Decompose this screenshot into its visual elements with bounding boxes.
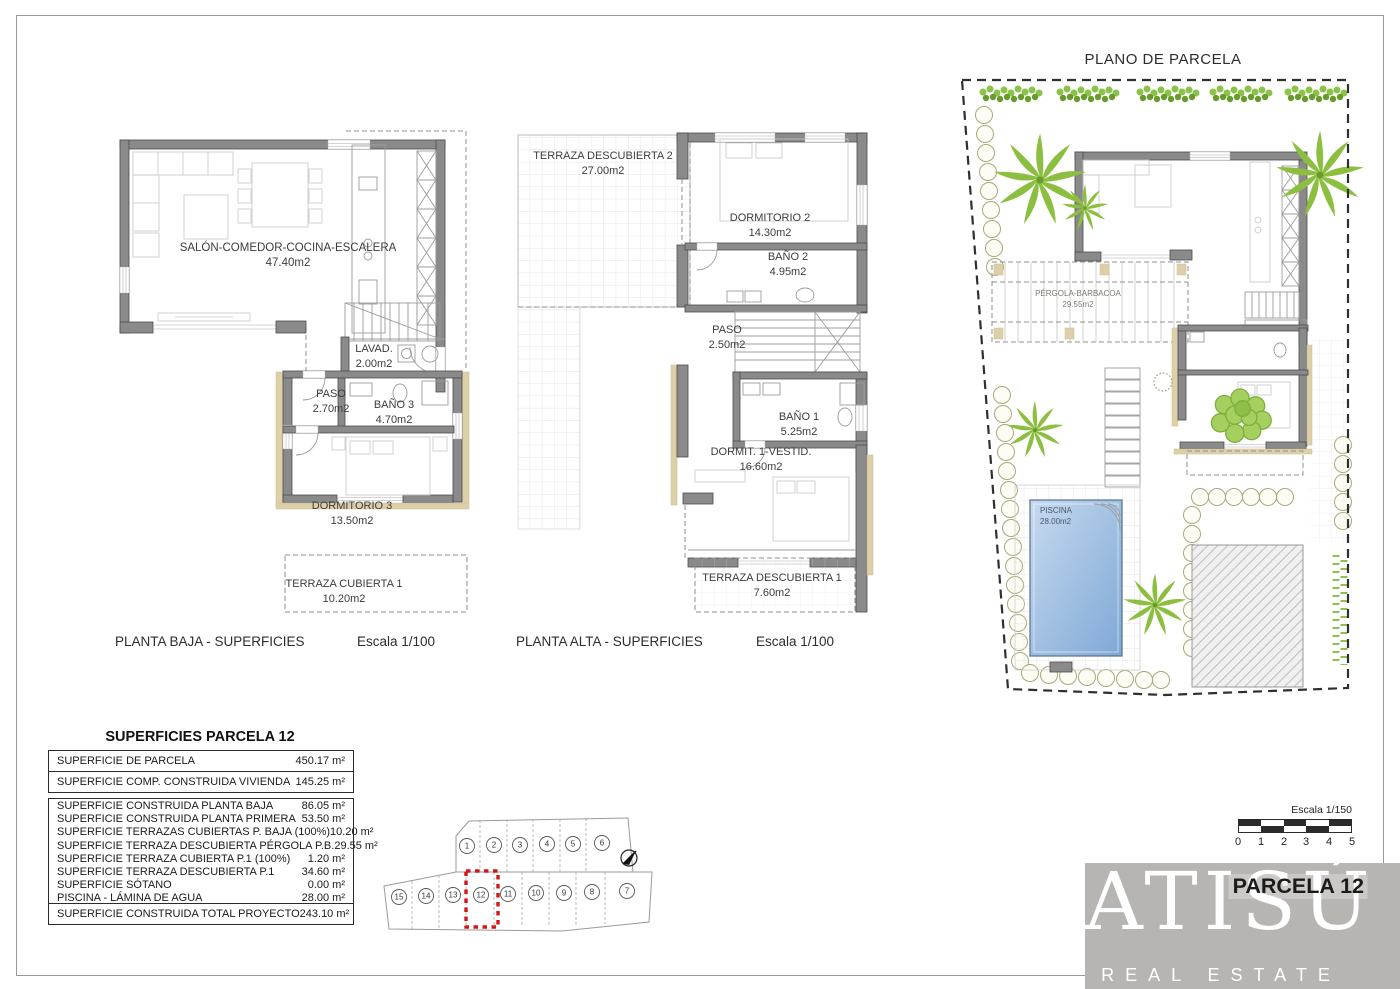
table-row-label: SUPERFICIE SÓTANO [57,879,172,892]
surface-table-row-vivienda: SUPERFICIE COMP. CONSTRUIDA VIVIENDA 145… [48,771,354,793]
table-row-value: 53.50 m² [302,813,345,826]
scale-tick: 2 [1281,836,1287,848]
svg-text:7: 7 [625,887,630,896]
planta-alta-scale: Escala 1/100 [756,634,834,649]
kitchen-island [352,145,385,333]
scale-bar-label: Escala 1/150 [1291,804,1352,816]
room-label-bano3: BAÑO 34.70m2 [374,398,414,428]
hedge-row [980,86,1348,103]
table-row-value: 0.00 m² [308,879,345,892]
table-row-label: SUPERFICIE DE PARCELA [57,751,195,771]
svg-text:11: 11 [504,890,513,899]
pool-terrace [1015,485,1140,670]
table-row-label: SUPERFICIE CONSTRUIDA PLANTA PRIMERA [57,813,296,826]
table-row-value: 243.10 m² [300,904,350,924]
svg-text:15: 15 [395,893,404,902]
room-label-dormitorio3: DORMITORIO 313.50m2 [312,499,392,529]
table-row-label: SUPERFICIE COMP. CONSTRUIDA VIVIENDA [57,772,290,792]
table-row-value: 29.55 m² [334,840,377,853]
bedroom2-furniture [720,139,848,221]
driveway [1192,545,1303,687]
bedroom1-furniture [695,470,849,541]
room-label-paso-pb: PASO2.70m2 [313,387,350,417]
bedroom3-furniture [332,437,447,495]
wall-segment [1050,662,1072,672]
table-row-label: SUPERFICIE CONSTRUIDA PLANTA BAJA [57,800,273,813]
table-row-label: SUPERFICIE TERRAZA CUBIERTA P.1 (100%) [57,853,290,866]
svg-text:8: 8 [590,888,595,897]
surface-table-total: SUPERFICIE CONSTRUIDA TOTAL PROYECTO 243… [48,903,354,925]
garden-steps [1105,368,1140,487]
room-label-bano2: BAÑO 24.95m2 [768,250,808,280]
planta-baja-drawing [100,125,480,625]
scale-tick: 4 [1326,836,1332,848]
svg-text:14: 14 [422,892,431,901]
svg-text:5: 5 [571,840,576,849]
room-label-paso-pa: PASO2.50m2 [709,323,746,353]
surface-table-title: SUPERFICIES PARCELA 12 [105,729,294,745]
room-label-salon: SALÓN-COMEDOR-COCINA-ESCALERA47.40m2 [180,241,397,271]
plot-plan-drawing [950,70,1360,710]
table-row-value: 1.20 m² [308,853,345,866]
planta-baja-title: PLANTA BAJA - SUPERFICIES [115,634,305,649]
svg-text:1: 1 [465,842,470,851]
surface-table-detail: SUPERFICIE CONSTRUIDA PLANTA BAJA86.05 m… [48,798,354,904]
room-label-dormitorio2: DORMITORIO 214.30m2 [730,211,810,241]
label-pergola: PÉRGOLA-BARBACOA29.55m2 [1035,288,1121,310]
table-row-value: 450.17 m² [295,751,345,771]
svg-text:4: 4 [545,840,550,849]
scale-bar [1238,819,1352,833]
svg-text:3: 3 [518,841,523,850]
spiral-shrub [1154,373,1172,391]
table-row-value: 145.25 m² [295,772,345,792]
room-label-dormitorio1: DORMIT. 1-VESTID.16.60m2 [711,445,812,475]
stairs [735,312,860,372]
planta-alta-drawing [505,125,875,625]
scale-tick: 0 [1235,836,1241,848]
parcela-number-label: PARCELA 12 [1229,874,1368,899]
planta-alta-title: PLANTA ALTA - SUPERFICIES [516,634,703,649]
svg-text:10: 10 [532,889,541,898]
room-label-bano1: BAÑO 15.25m2 [779,410,819,440]
living-furniture [133,152,322,321]
lot-map: 1 2 3 4 5 6 15 14 13 12 11 10 9 8 7 [375,805,665,940]
plot-plan-title: PLANO DE PARCELA [1085,51,1242,68]
svg-text:2: 2 [492,841,497,850]
label-piscina: PISCINA28.00m2 [1040,505,1072,527]
table-row-value: 10.20 m² [330,826,373,839]
agency-logo-wordmark: ATISÚ [1085,855,1357,948]
svg-text:6: 6 [600,839,605,848]
agency-logo-subtitle: REAL ESTATE [1085,965,1357,986]
table-row-label: SUPERFICIE TERRAZA DESCUBIERTA PÉRGOLA P… [57,840,334,853]
right-paving [1310,338,1348,543]
planta-baja-scale: Escala 1/100 [357,634,435,649]
svg-text:13: 13 [449,891,458,900]
room-label-terraza-cubierta1: TERRAZA CUBIERTA 110.20m2 [286,577,403,607]
kitchen-cabinets [417,151,436,325]
plan-sheet: 1 2 3 4 5 6 15 14 13 12 11 10 9 8 7 SALÓ… [0,0,1400,989]
table-row-value: 86.05 m² [302,800,345,813]
table-row-label: SUPERFICIE TERRAZAS CUBIERTAS P. BAJA (1… [57,826,330,839]
table-row-label: SUPERFICIE CONSTRUIDA TOTAL PROYECTO [57,904,300,924]
room-label-terraza-descubierta2: TERRAZA DESCUBIERTA 227.00m2 [533,149,673,179]
surface-table-row-parcela: SUPERFICIE DE PARCELA 450.17 m² [48,750,354,772]
scale-tick: 3 [1303,836,1309,848]
svg-text:12: 12 [477,891,486,900]
scale-tick: 1 [1258,836,1264,848]
terrace2-grid [518,135,690,529]
room-label-lavadero: LAVAD.2.00m2 [355,342,393,372]
svg-text:9: 9 [562,889,567,898]
table-row-label: SUPERFICIE TERRAZA DESCUBIERTA P.1 [57,866,274,879]
table-row-value: 34.60 m² [302,866,345,879]
room-label-terraza-descubierta1: TERRAZA DESCUBIERTA 17.60m2 [702,571,842,601]
scale-tick: 5 [1349,836,1355,848]
green-strip-right [1336,555,1344,665]
